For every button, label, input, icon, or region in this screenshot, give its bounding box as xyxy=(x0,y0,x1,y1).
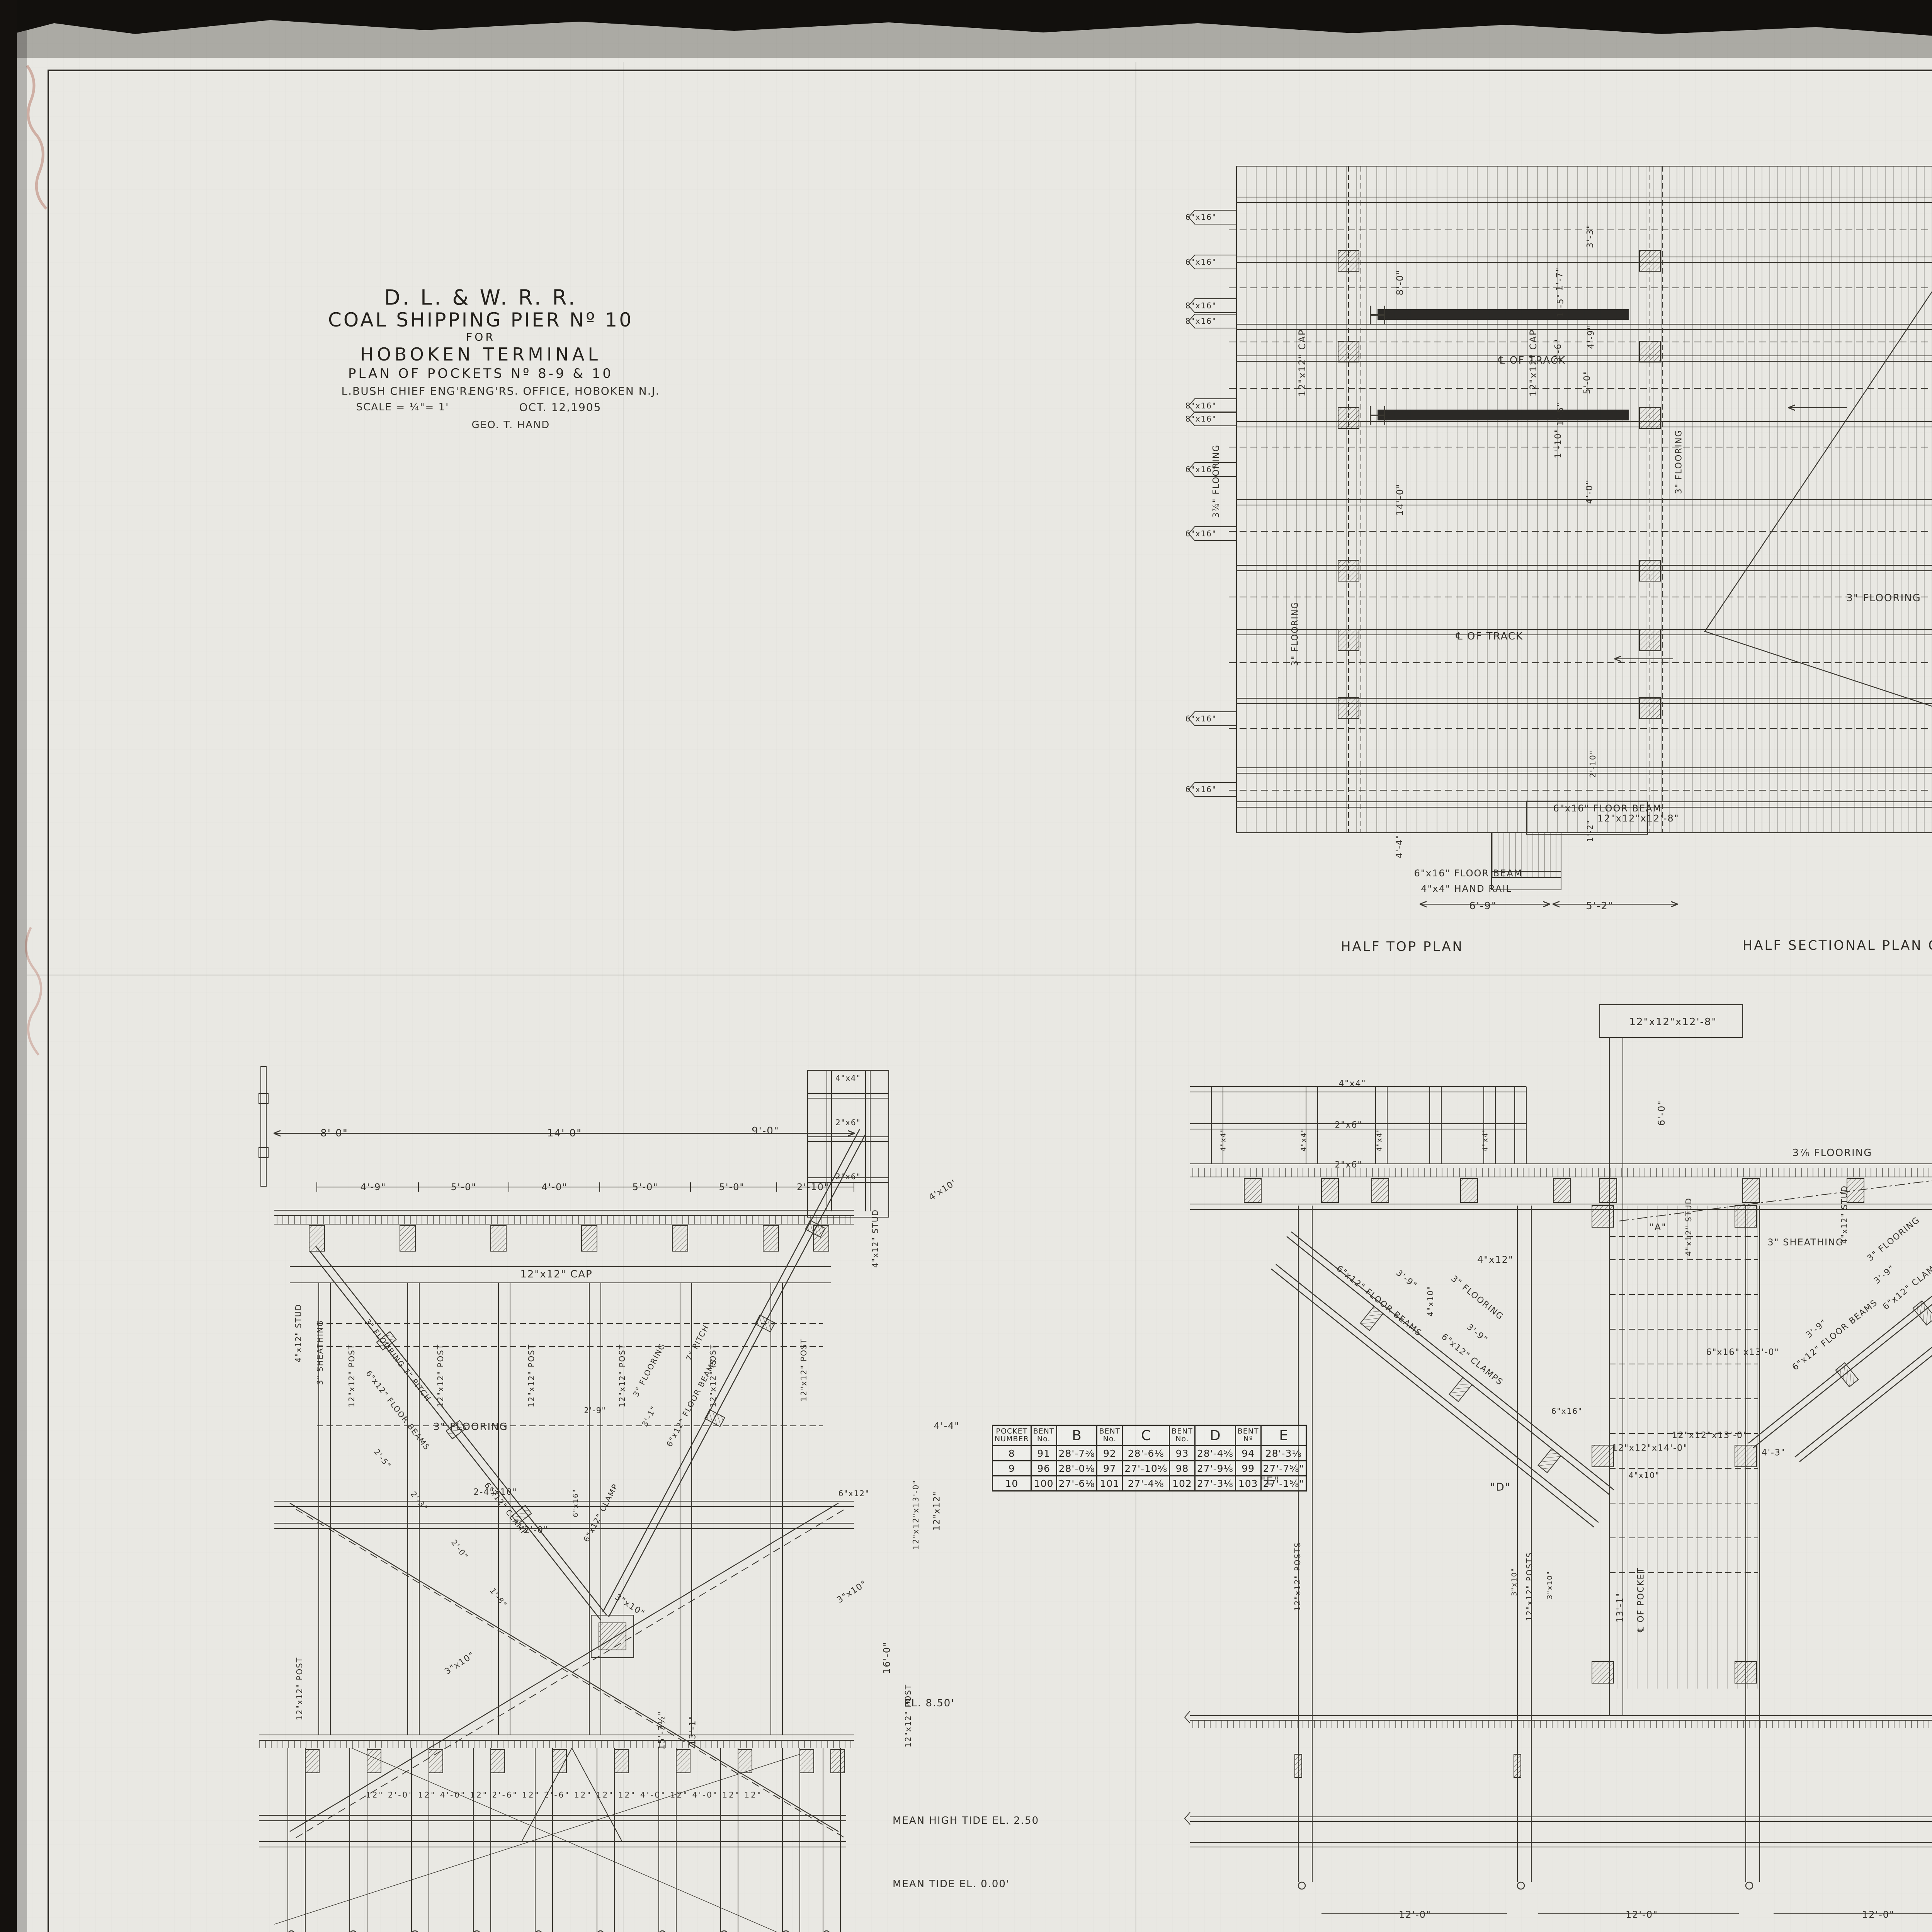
title-railroad: D. L. & W. R. R. xyxy=(384,286,577,310)
dim-label: 12'-0" xyxy=(1626,1909,1658,1920)
beam-tag: 6"x16" xyxy=(1185,257,1216,267)
post-label: 12"x12" POST xyxy=(617,1344,627,1407)
table-cell: 27'-6⅛ xyxy=(1056,1476,1097,1491)
dim-label: 6'-0" xyxy=(1656,1100,1667,1126)
cap-label: 12"x12" CAP xyxy=(520,1269,592,1280)
dim-label: 15'-3½" xyxy=(657,1711,667,1750)
table-header: B xyxy=(1056,1425,1097,1446)
size-label: 12"x12" xyxy=(932,1491,942,1531)
cap-label: 12"x12" CAP xyxy=(1297,329,1308,397)
size-label: 6"x16" x13'-0" xyxy=(1706,1348,1779,1357)
dim-label: 9'-0" xyxy=(752,1125,779,1137)
track-centerline-label: ℄ OF TRACK xyxy=(1456,631,1523,642)
torn-top-edge xyxy=(0,0,1932,66)
floor-beam-label: 6"x16" FLOOR BEAM xyxy=(1553,803,1662,814)
table-cell: 9 xyxy=(993,1461,1031,1476)
sheathing-label: 3" SHEATHING xyxy=(315,1320,325,1385)
dim-label: 1'-2" xyxy=(1585,820,1595,842)
dim-label: 1'-5" xyxy=(1556,293,1566,317)
beam-tag: 8"x16" xyxy=(1185,316,1216,326)
dim-label: 5'-2" xyxy=(1586,900,1614,912)
table-cell: 28'-3⅛ xyxy=(1261,1446,1306,1461)
table-cell: 28'-7⅝ xyxy=(1056,1446,1097,1461)
dim-label: 16'-0" xyxy=(881,1641,892,1674)
caption-half-top-plan: HALF TOP PLAN xyxy=(1341,939,1464,954)
pile-spacing-dims: 12" 2'-0" 12" 4'-0" 12" 2'-6" 12" 2'-6" … xyxy=(366,1790,762,1799)
size-label: 6"x16" xyxy=(572,1489,580,1517)
title-plan-of-pockets: PLAN OF POCKETS Nº 8-9 & 10 xyxy=(348,366,613,381)
table-cell: 28'-0⅛ xyxy=(1056,1461,1097,1476)
size-label: 4"x10" xyxy=(1629,1471,1660,1480)
post-size-label: 12"x12"x12'-8" xyxy=(1597,813,1679,824)
dim-label: 12'-0" xyxy=(1862,1909,1895,1920)
dim-label: 8'-0" xyxy=(1395,270,1405,296)
title-signature: GEO. T. HAND xyxy=(472,419,550,431)
dim-label: 4'-9" xyxy=(1587,325,1596,349)
dim-label: 4'-0" xyxy=(1585,480,1595,504)
table-cell: 10 xyxy=(993,1476,1031,1491)
flooring-label: 3" FLOORING xyxy=(1846,592,1921,604)
caption-half-sectional-plan: HALF SECTIONAL PLAN ON LINE "A" A" xyxy=(1743,938,1932,953)
table-cell: 102 xyxy=(1170,1476,1195,1491)
dim-label: 3'-3" xyxy=(1586,224,1595,248)
post-label: 12"x12" POST xyxy=(527,1344,536,1407)
svg-defs xyxy=(0,0,4,4)
tide-note-high: MEAN HIGH TIDE EL. 2.50 xyxy=(893,1815,1039,1827)
size-label: 12"x12"x13'-0" xyxy=(911,1480,920,1549)
table-cell: 28'-6⅛ xyxy=(1122,1446,1170,1461)
beam-tag: 6"x16" xyxy=(1185,785,1216,794)
table-cell: 27'-7⅝" xyxy=(1261,1461,1306,1476)
dim-label: 5'-0" xyxy=(1583,370,1592,394)
size-label: 12"x12"x13'-0" xyxy=(1672,1431,1748,1440)
dim-label: 4'-0" xyxy=(542,1182,568,1192)
dim-label: 8'-0" xyxy=(320,1128,348,1139)
stud-label: 4"x12" STUD xyxy=(871,1209,880,1268)
stud-label: 4"x12" STUD xyxy=(1840,1185,1849,1244)
dim-label: 1'-5" xyxy=(1556,402,1566,426)
flooring-label: 3" FLOORING xyxy=(1291,601,1300,666)
dim-label: 3'-6" xyxy=(1554,338,1563,362)
table-header: BENT No. xyxy=(1031,1425,1056,1446)
beam-tag: 8"x16" xyxy=(1185,414,1216,423)
table-cell: 27'-4⅝ xyxy=(1122,1476,1170,1491)
post-label: 12"x12" POSTS xyxy=(1293,1542,1302,1611)
beam-tag: 8"x16" xyxy=(1185,401,1216,410)
dim-label: 14'-0" xyxy=(1395,483,1405,516)
dim-label: 1'-7" xyxy=(1555,267,1565,291)
red-scribble-mark xyxy=(12,54,89,286)
post-label: 12"x12" POST xyxy=(903,1684,913,1747)
bent-mark: "D" xyxy=(1490,1481,1510,1493)
tide-note-mean: MEAN TIDE EL. 0.00' xyxy=(893,1878,1010,1890)
table-cell: 97 xyxy=(1097,1461,1122,1476)
rail-label: 4"x4" xyxy=(835,1073,861,1083)
flooring-label: 3⅞ FLOORING xyxy=(1793,1147,1872,1159)
dim-label: 4'-9" xyxy=(361,1182,386,1192)
table-cell: 27'-9⅛ xyxy=(1195,1461,1235,1476)
stud-label: 4"x12" STUD xyxy=(1684,1197,1693,1256)
table-cell: 100 xyxy=(1031,1476,1056,1491)
table-cell: 99 xyxy=(1235,1461,1261,1476)
dim-label: 4'-4" xyxy=(1395,834,1405,858)
flooring-label: 3⅞" FLOORING xyxy=(1212,444,1221,518)
dim-label: 5'-0" xyxy=(719,1182,745,1192)
size-label: 12"x12"x14'-0" xyxy=(1612,1444,1688,1453)
dim-label: 4'-3" xyxy=(1762,1448,1786,1458)
beam-tag: 6"x16" xyxy=(1185,714,1216,723)
table-cell: 91 xyxy=(1031,1446,1056,1461)
dim-label: 13'-1" xyxy=(1616,1592,1625,1622)
size-label: 6"x16" xyxy=(1551,1406,1582,1416)
table-cell: 103 xyxy=(1235,1476,1261,1491)
dim-label: 6'-9" xyxy=(1469,900,1497,912)
table-cell: 27'-1⅝" xyxy=(1261,1476,1306,1491)
title-terminal: HOBOKEN TERMINAL xyxy=(360,344,601,365)
rail-label: 2"x6" xyxy=(835,1118,861,1127)
table-cell: 96 xyxy=(1031,1461,1056,1476)
post-size-label: 12"x12"x12'-8" xyxy=(1629,1016,1717,1028)
table-header: POCKET NUMBER xyxy=(993,1425,1031,1446)
table-header: C xyxy=(1122,1425,1170,1446)
sheathing-label: 3" SHEATHING xyxy=(1767,1237,1844,1248)
rail-label: 2"x6" xyxy=(1335,1160,1362,1170)
post-label: 12"x12" POST xyxy=(799,1338,808,1401)
post-label: 12"x12" POSTS xyxy=(1525,1552,1534,1621)
title-engineer: L.BUSH CHIEF ENG'R. xyxy=(342,385,472,398)
dim-label: 5'-0" xyxy=(451,1182,477,1192)
dim-label: 1'-10" xyxy=(1554,428,1563,458)
dim-label: 12'-0" xyxy=(1399,1909,1431,1920)
table-cell: 94 xyxy=(1235,1446,1261,1461)
centerline-label: ℄ OF POCKET xyxy=(1636,1567,1646,1632)
stud-label: 4"x4" xyxy=(1481,1128,1490,1151)
post-label: 12"x12" POST xyxy=(347,1344,356,1407)
stud-label: 4"x4" xyxy=(1219,1128,1228,1151)
elevation-note: EL. 8.50' xyxy=(904,1697,954,1709)
stud-label: 4"x4" xyxy=(1376,1128,1384,1151)
table-cell: 27'-3⅛ xyxy=(1195,1476,1235,1491)
floor-beam-label: 6"x16" FLOOR BEAM xyxy=(1414,868,1523,879)
table-header: BENT No. xyxy=(1097,1425,1122,1446)
flooring-label: 3" FLOORING xyxy=(1674,429,1684,494)
beam-tag: 6"x16" xyxy=(1185,529,1216,538)
pocket-bent-table: POCKET NUMBER BENT No. B BENT No. C BENT… xyxy=(992,1425,1307,1492)
red-scribble-mark xyxy=(8,920,70,1074)
table-header: D xyxy=(1195,1425,1235,1446)
table-cell: 93 xyxy=(1170,1446,1195,1461)
size-label: 6"x12" xyxy=(838,1489,869,1498)
dim-label: 14'-0" xyxy=(547,1128,582,1139)
section-mark: "A" xyxy=(1650,1222,1667,1233)
table-cell: 92 xyxy=(1097,1446,1122,1461)
dim-label: 4'-4" xyxy=(934,1420,960,1431)
hand-rail-label: 4"x4" HAND RAIL xyxy=(1421,883,1512,894)
stud-label: 4"x12" STUD xyxy=(294,1304,303,1362)
table-cell: 101 xyxy=(1097,1476,1122,1491)
table-cell: 8 xyxy=(993,1446,1031,1461)
rail-label: 2"x6" xyxy=(835,1172,861,1181)
dim-label: 2'-10" xyxy=(1588,750,1597,778)
stud-label: 4"x4" xyxy=(1300,1128,1308,1151)
beam-label: 2-4"x10" xyxy=(473,1488,517,1497)
post-label: 12"x12" POST xyxy=(295,1657,304,1720)
dim-label: 13'-1" xyxy=(688,1715,698,1745)
beam-tag: 6"x16" xyxy=(1185,213,1216,222)
rail-label: 2"x6" xyxy=(1335,1121,1362,1130)
top-plan-drawing xyxy=(1171,160,1932,945)
dim-label: 2'-9" xyxy=(584,1406,606,1415)
table-cell: 98 xyxy=(1170,1461,1195,1476)
table-header: BENT Nº xyxy=(1235,1425,1261,1446)
beam-tag: 8"x16" xyxy=(1185,301,1216,310)
flooring-label: 3" FLOORING xyxy=(433,1421,508,1433)
table-cell: 28'-4⅝ xyxy=(1195,1446,1235,1461)
title-scale: SCALE = ¼"= 1' xyxy=(356,401,449,413)
table-header: BENT No. xyxy=(1170,1425,1195,1446)
blueprint-sheet: D. L. & W. R. R. COAL SHIPPING PIER Nº 1… xyxy=(0,0,1932,1932)
title-office: ENG'RS. OFFICE, HOBOKEN N.J. xyxy=(469,385,660,398)
post-label: 12"x12" POST xyxy=(436,1344,445,1407)
table-cell: 27'-10⅝ xyxy=(1122,1461,1170,1476)
size-label: 4"x10" xyxy=(1426,1286,1435,1316)
dim-label: 2'-0" xyxy=(524,1526,548,1535)
brace-label: 3"x10" xyxy=(1510,1568,1519,1596)
brace-label: 3"x10" xyxy=(1546,1571,1554,1599)
dim-label: 2'-10" xyxy=(797,1182,829,1192)
rail-label: 4"x4" xyxy=(1338,1079,1366,1089)
title-date: OCT. 12,1905 xyxy=(519,401,602,414)
dim-label: 5'-0" xyxy=(633,1182,658,1192)
stud-label: 4"x12" xyxy=(1477,1254,1514,1265)
title-pier: COAL SHIPPING PIER Nº 10 xyxy=(328,309,633,331)
table-header: E xyxy=(1261,1425,1306,1446)
title-for: FOR xyxy=(466,331,495,344)
